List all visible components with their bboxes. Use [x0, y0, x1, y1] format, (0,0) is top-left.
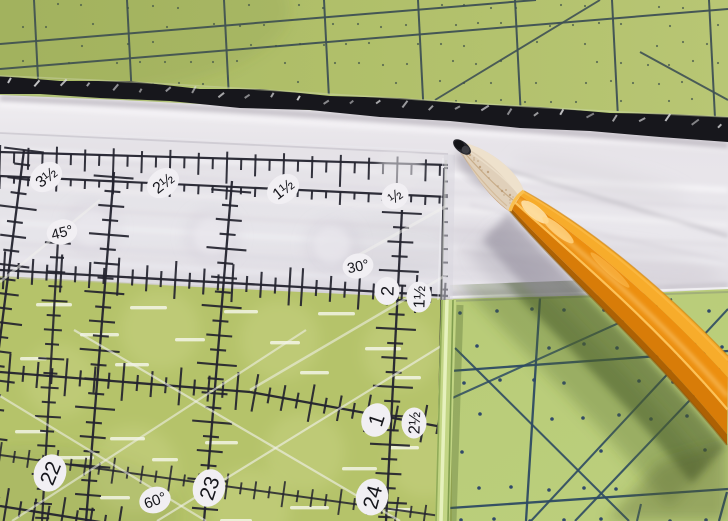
svg-text:1½: 1½: [411, 286, 429, 309]
svg-text:2½: 2½: [406, 412, 424, 435]
svg-text:2: 2: [377, 286, 397, 297]
